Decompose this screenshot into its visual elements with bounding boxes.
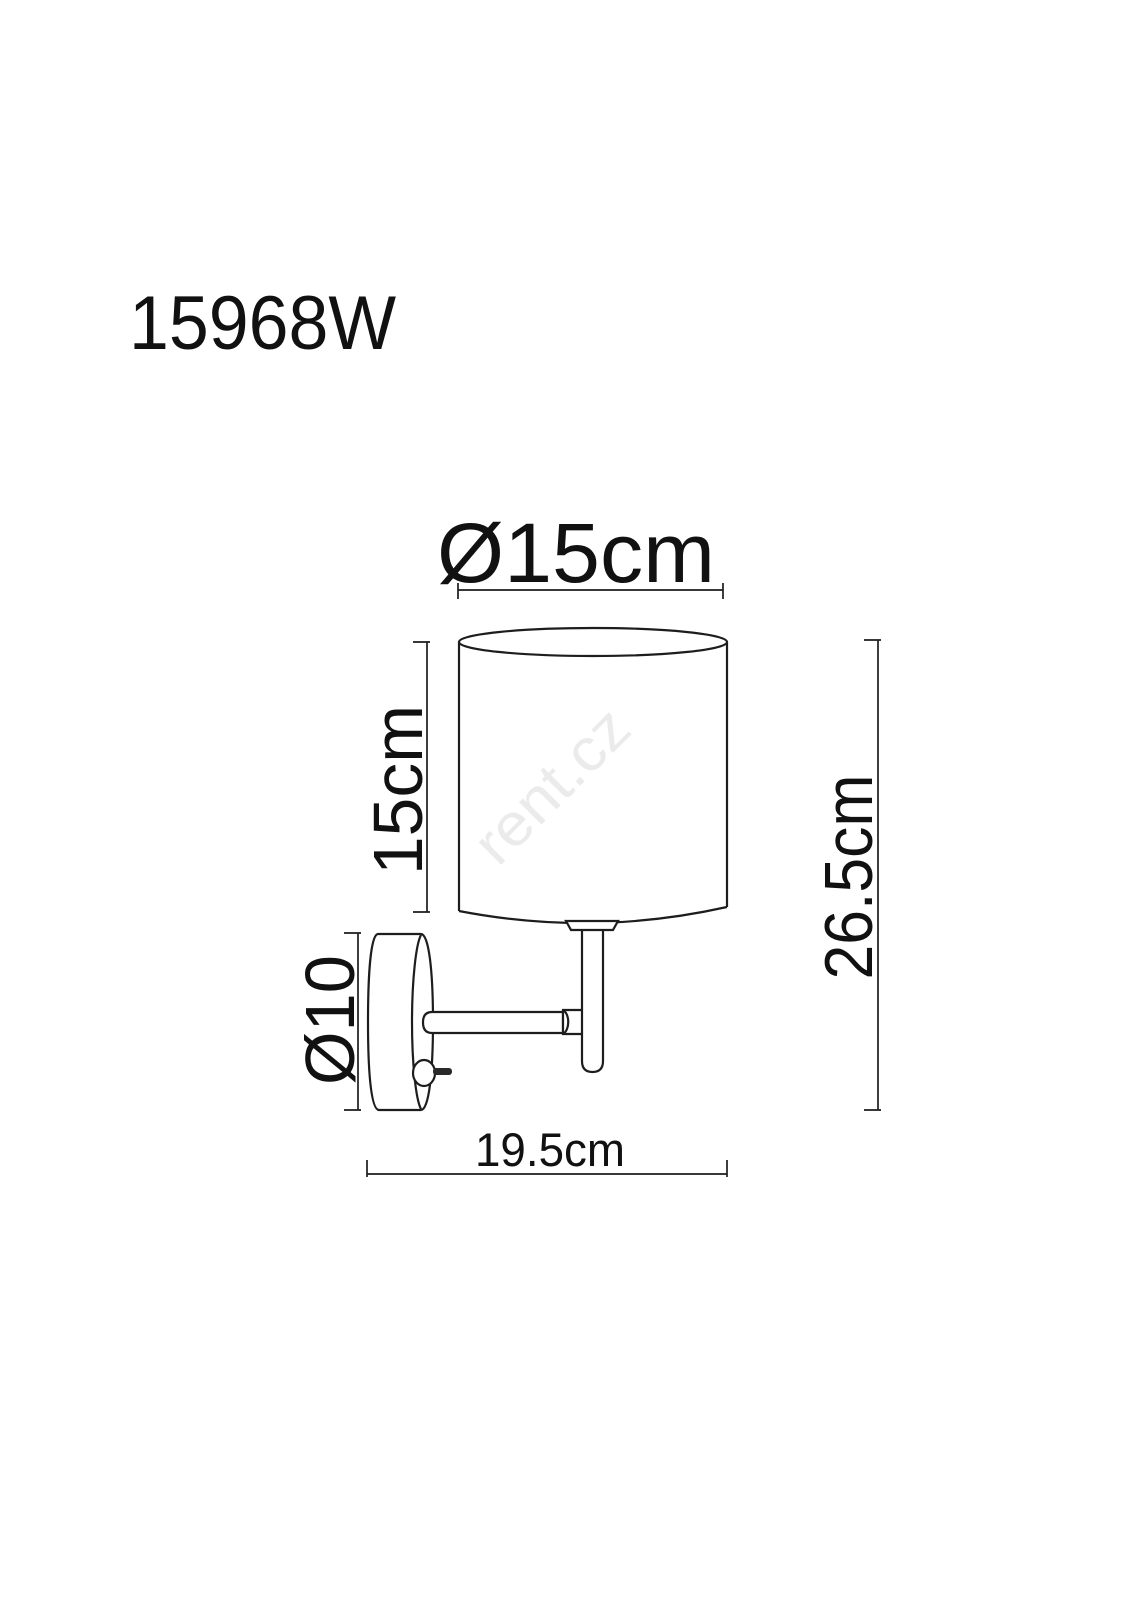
label-total-height: 26.5cm [811, 775, 887, 980]
switch-knob [413, 1060, 435, 1086]
label-plate-diameter: Ø10 [291, 955, 369, 1085]
switch-lever [433, 1068, 452, 1075]
product-dimension-sheet: rent.cz Ø15cm 15cm Ø10 [0, 0, 1131, 1600]
product-code: 15968W [129, 281, 396, 366]
switch [413, 1060, 452, 1086]
mounting-arm [423, 1012, 563, 1033]
technical-drawing-svg: rent.cz Ø15cm 15cm Ø10 [0, 0, 1131, 1600]
label-shade-height: 15cm [359, 705, 437, 875]
stem [582, 928, 603, 1072]
arm-coupler [563, 1010, 584, 1034]
label-depth: 19.5cm [475, 1123, 625, 1176]
socket-mount [566, 921, 618, 930]
label-shade-diameter: Ø15cm [437, 506, 715, 600]
